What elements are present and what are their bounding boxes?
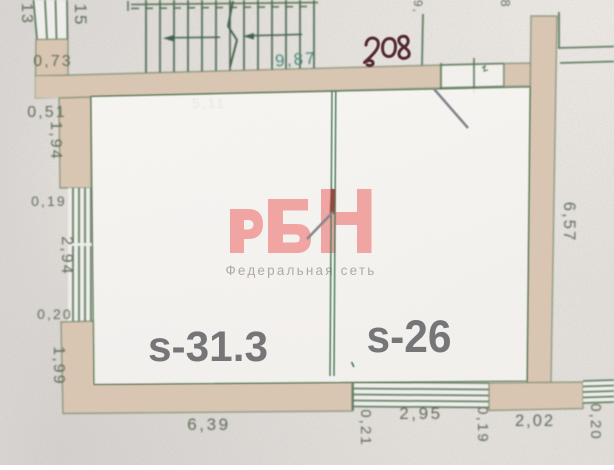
svg-text:8: 8 <box>498 0 513 9</box>
svg-text:0,51: 0,51 <box>27 104 67 121</box>
svg-text:6,39: 6,39 <box>187 415 231 434</box>
svg-text:2,95: 2,95 <box>399 404 443 423</box>
svg-text:0,73: 0,73 <box>33 53 73 70</box>
svg-text:15: 15 <box>71 3 90 26</box>
svg-text:0,20: 0,20 <box>587 403 604 441</box>
svg-text:6,57: 6,57 <box>560 202 578 243</box>
svg-text:s-26: s-26 <box>367 311 452 362</box>
svg-text:1,99: 1,99 <box>50 346 67 386</box>
svg-text:0,21: 0,21 <box>357 409 374 447</box>
svg-text:0,19: 0,19 <box>31 193 67 209</box>
svg-text:2,94: 2,94 <box>58 236 75 276</box>
svg-text:9,: 9, <box>411 0 425 14</box>
svg-text:2,02: 2,02 <box>515 412 555 430</box>
svg-text:Федеральная сеть: Федеральная сеть <box>225 263 376 278</box>
svg-text:13: 13 <box>18 3 35 25</box>
svg-text:9,87: 9,87 <box>274 49 317 71</box>
svg-text:0,20: 0,20 <box>37 306 73 322</box>
svg-text:1,94: 1,94 <box>47 121 64 161</box>
svg-text:0,19: 0,19 <box>474 406 491 444</box>
svg-text:s-31.3: s-31.3 <box>148 323 268 371</box>
